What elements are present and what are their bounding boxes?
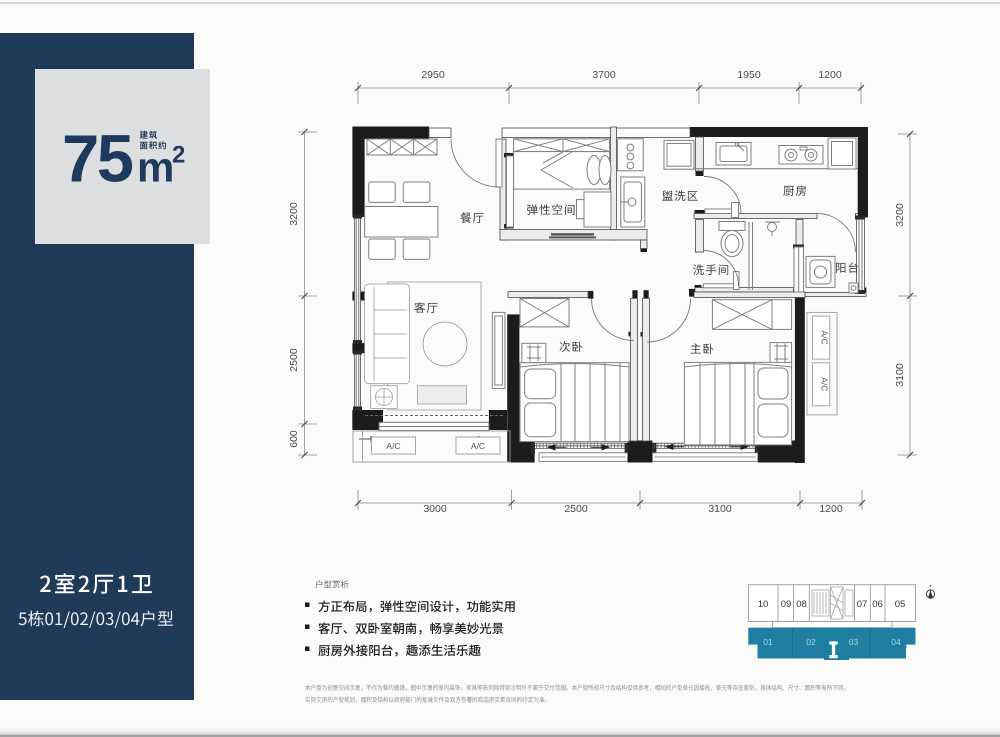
- svg-text:1950: 1950: [737, 69, 761, 81]
- svg-text:2: 2: [172, 142, 185, 169]
- svg-text:A/C: A/C: [386, 441, 400, 451]
- svg-text:3200: 3200: [894, 203, 906, 227]
- svg-text:08: 08: [796, 599, 807, 610]
- svg-text:m: m: [137, 144, 174, 191]
- svg-text:05: 05: [895, 599, 906, 610]
- svg-text:75: 75: [62, 122, 133, 197]
- svg-text:1200: 1200: [819, 503, 843, 515]
- svg-text:A/C: A/C: [819, 331, 829, 345]
- svg-text:3100: 3100: [894, 363, 906, 387]
- svg-text:10: 10: [758, 599, 769, 610]
- svg-text:A/C: A/C: [471, 441, 485, 451]
- svg-text:600: 600: [288, 430, 300, 448]
- svg-text:2500: 2500: [288, 348, 300, 372]
- svg-text:1200: 1200: [818, 69, 842, 81]
- svg-text:02: 02: [806, 637, 816, 647]
- svg-text:2500: 2500: [564, 503, 588, 515]
- svg-text:01: 01: [763, 637, 773, 647]
- svg-text:04: 04: [891, 637, 901, 647]
- svg-text:3000: 3000: [423, 503, 447, 515]
- svg-text:09: 09: [781, 599, 792, 610]
- svg-text:06: 06: [872, 599, 883, 610]
- svg-text:3100: 3100: [708, 503, 732, 515]
- svg-text:2950: 2950: [421, 69, 445, 81]
- svg-text:A/C: A/C: [819, 377, 829, 391]
- svg-text:07: 07: [857, 599, 868, 610]
- svg-text:03: 03: [849, 637, 859, 647]
- svg-text:3200: 3200: [288, 202, 300, 226]
- svg-text:3700: 3700: [592, 69, 616, 81]
